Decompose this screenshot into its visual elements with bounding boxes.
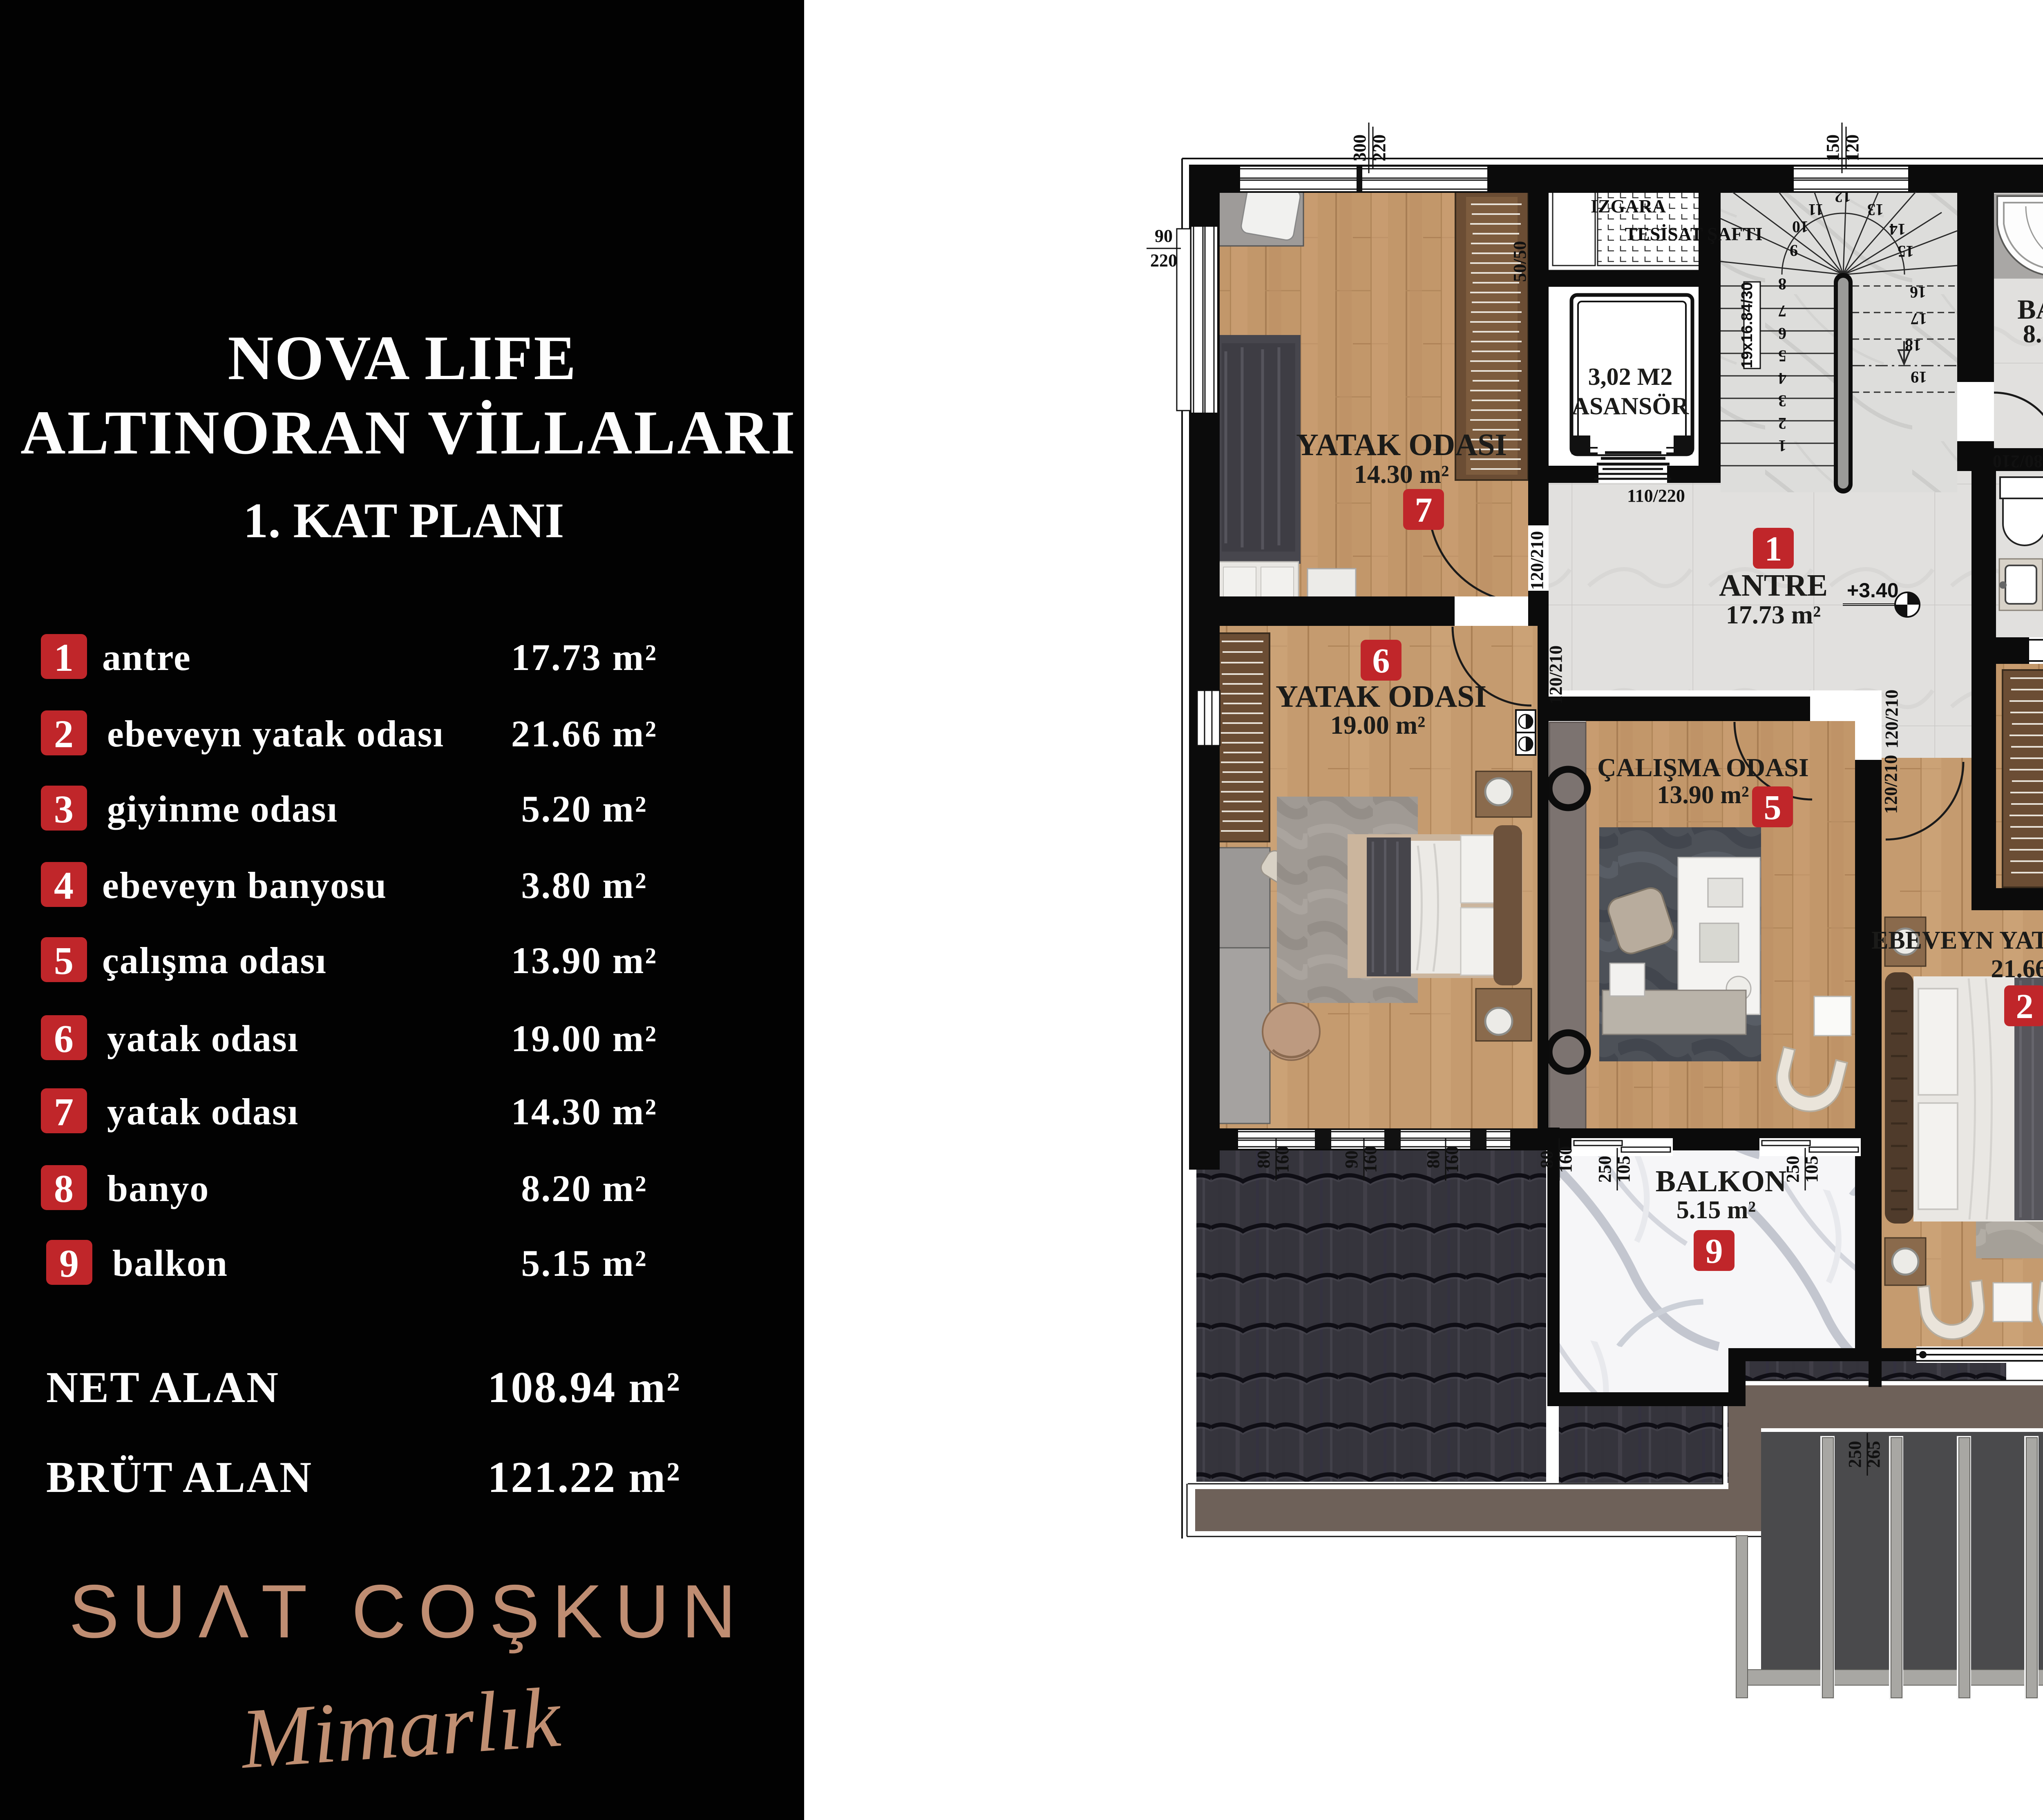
svg-text:5.15 m²: 5.15 m²: [521, 1242, 647, 1284]
svg-text:8.20 m²: 8.20 m²: [2023, 320, 2043, 348]
svg-text:220: 220: [1150, 250, 1177, 270]
svg-text:SUΛT COŞKUN: SUΛT COŞKUN: [69, 1570, 748, 1654]
svg-text:265: 265: [1864, 1441, 1884, 1468]
svg-text:BALKON: BALKON: [1656, 1165, 1787, 1198]
svg-text:7: 7: [54, 1090, 74, 1134]
svg-text:5.15 m²: 5.15 m²: [1676, 1196, 1756, 1224]
svg-text:160: 160: [1442, 1146, 1462, 1173]
svg-text:80: 80: [1254, 1150, 1274, 1168]
svg-text:120: 120: [1842, 134, 1862, 161]
svg-text:3: 3: [1778, 392, 1786, 410]
svg-text:5: 5: [1778, 347, 1786, 365]
svg-text:4: 4: [1778, 369, 1786, 388]
svg-text:6: 6: [54, 1017, 74, 1061]
svg-text:6: 6: [1372, 641, 1390, 680]
svg-text:NET ALAN: NET ALAN: [46, 1363, 279, 1412]
svg-text:150: 150: [1823, 134, 1843, 161]
svg-text:ÇALIŞMA ODASI: ÇALIŞMA ODASI: [1597, 753, 1808, 782]
svg-text:12: 12: [1835, 188, 1851, 206]
svg-text:5.20 m²: 5.20 m²: [521, 788, 647, 830]
svg-text:1: 1: [54, 636, 74, 679]
svg-text:120/210: 120/210: [1527, 531, 1547, 590]
svg-text:10: 10: [1792, 218, 1808, 236]
svg-text:160: 160: [1272, 1146, 1292, 1173]
svg-text:3.80 m²: 3.80 m²: [521, 864, 647, 906]
svg-text:1: 1: [1765, 529, 1782, 568]
svg-text:1: 1: [1778, 437, 1786, 455]
svg-text:giyinme odası: giyinme odası: [107, 788, 338, 830]
svg-text:13.90 m²: 13.90 m²: [511, 940, 657, 981]
svg-text:14.30 m²: 14.30 m²: [1354, 460, 1449, 489]
svg-text:NOVA LIFE: NOVA LIFE: [228, 323, 577, 393]
svg-text:9: 9: [1705, 1231, 1723, 1271]
svg-text:+3.40: +3.40: [1847, 579, 1899, 602]
svg-text:8.20 m²: 8.20 m²: [521, 1168, 647, 1209]
svg-text:80: 80: [1537, 1150, 1557, 1168]
svg-text:19.00 m²: 19.00 m²: [511, 1018, 657, 1059]
svg-text:17.73 m²: 17.73 m²: [1726, 600, 1821, 629]
svg-text:15: 15: [1898, 242, 1914, 261]
svg-text:YATAK ODASI: YATAK ODASI: [1296, 428, 1507, 462]
svg-text:TESİSAT ŞAFTI: TESİSAT ŞAFTI: [1625, 223, 1762, 244]
svg-text:121.22 m²: 121.22 m²: [487, 1453, 681, 1502]
svg-text:90: 90: [1341, 1150, 1361, 1168]
svg-text:BRÜT ALAN: BRÜT ALAN: [46, 1453, 313, 1502]
svg-text:balkon: balkon: [112, 1242, 228, 1284]
svg-text:160: 160: [1556, 1146, 1576, 1173]
svg-text:6: 6: [1778, 324, 1786, 343]
svg-text:21.66 m²: 21.66 m²: [1991, 955, 2043, 983]
svg-text:9: 9: [1790, 241, 1798, 260]
svg-text:108.94 m²: 108.94 m²: [487, 1363, 681, 1412]
svg-text:18: 18: [1905, 336, 1921, 355]
svg-text:105: 105: [1614, 1156, 1634, 1183]
svg-text:17: 17: [1911, 310, 1927, 328]
svg-text:120/210: 120/210: [1881, 755, 1901, 814]
svg-text:13.90 m²: 13.90 m²: [1657, 781, 1749, 809]
svg-text:8: 8: [1778, 275, 1786, 293]
svg-text:EBEVEYN YATAK ODASI: EBEVEYN YATAK ODASI: [1871, 927, 2043, 954]
svg-text:IZGARA: IZGARA: [1591, 196, 1666, 217]
svg-text:110/220: 110/220: [1627, 486, 1685, 506]
svg-text:3,02 M2: 3,02 M2: [1588, 363, 1673, 390]
svg-text:16: 16: [1910, 283, 1926, 301]
svg-text:220: 220: [1369, 134, 1389, 161]
svg-text:90: 90: [1155, 226, 1173, 246]
svg-text:14.30 m²: 14.30 m²: [511, 1091, 657, 1132]
svg-text:7: 7: [1415, 490, 1433, 529]
svg-text:7: 7: [1778, 302, 1786, 320]
svg-text:250: 250: [1595, 1156, 1615, 1183]
svg-text:yatak odası: yatak odası: [107, 1018, 299, 1059]
svg-text:14: 14: [1889, 220, 1906, 239]
svg-text:160: 160: [1360, 1146, 1380, 1173]
svg-text:çalışma odası: çalışma odası: [102, 940, 327, 981]
svg-text:250: 250: [1845, 1441, 1865, 1468]
svg-text:50/50: 50/50: [1510, 241, 1530, 282]
svg-text:21.66 m²: 21.66 m²: [511, 713, 657, 755]
svg-text:80: 80: [1423, 1150, 1443, 1168]
svg-text:8: 8: [54, 1167, 74, 1210]
svg-text:ASANSÖR: ASANSÖR: [1572, 393, 1689, 420]
svg-text:ANTRE: ANTRE: [1719, 568, 1828, 603]
svg-text:ebeveyn banyosu: ebeveyn banyosu: [102, 864, 387, 906]
svg-text:yatak odası: yatak odası: [107, 1091, 299, 1132]
svg-text:13: 13: [1867, 201, 1884, 219]
svg-text:4: 4: [54, 864, 74, 907]
svg-text:YATAK ODASI: YATAK ODASI: [1276, 679, 1486, 714]
svg-text:2: 2: [54, 712, 74, 756]
svg-text:11: 11: [1808, 201, 1824, 219]
svg-text:19: 19: [1911, 368, 1927, 386]
svg-text:19.00 m²: 19.00 m²: [1330, 710, 1426, 739]
svg-text:9: 9: [59, 1242, 79, 1285]
svg-text:3: 3: [54, 787, 74, 831]
svg-text:5: 5: [1764, 788, 1781, 827]
svg-text:250: 250: [1783, 1156, 1803, 1183]
svg-text:ebeveyn yatak odası: ebeveyn yatak odası: [107, 713, 444, 755]
svg-text:19x16.84/30: 19x16.84/30: [1739, 282, 1756, 368]
svg-text:5: 5: [54, 939, 74, 983]
svg-text:antre: antre: [102, 636, 191, 678]
svg-text:17.73 m²: 17.73 m²: [511, 636, 657, 678]
svg-text:1. KAT PLANI: 1. KAT PLANI: [243, 493, 564, 548]
svg-text:2: 2: [2016, 987, 2034, 1026]
svg-text:80/210: 80/210: [1993, 451, 2043, 471]
svg-text:105: 105: [1802, 1156, 1822, 1183]
svg-text:ALTINORAN VİLLALARI: ALTINORAN VİLLALARI: [20, 398, 797, 467]
svg-text:300: 300: [1350, 134, 1370, 161]
svg-text:2: 2: [1778, 414, 1786, 433]
svg-text:120/210: 120/210: [1882, 690, 1902, 748]
svg-text:banyo: banyo: [107, 1168, 209, 1209]
svg-text:120/210: 120/210: [1546, 645, 1566, 704]
